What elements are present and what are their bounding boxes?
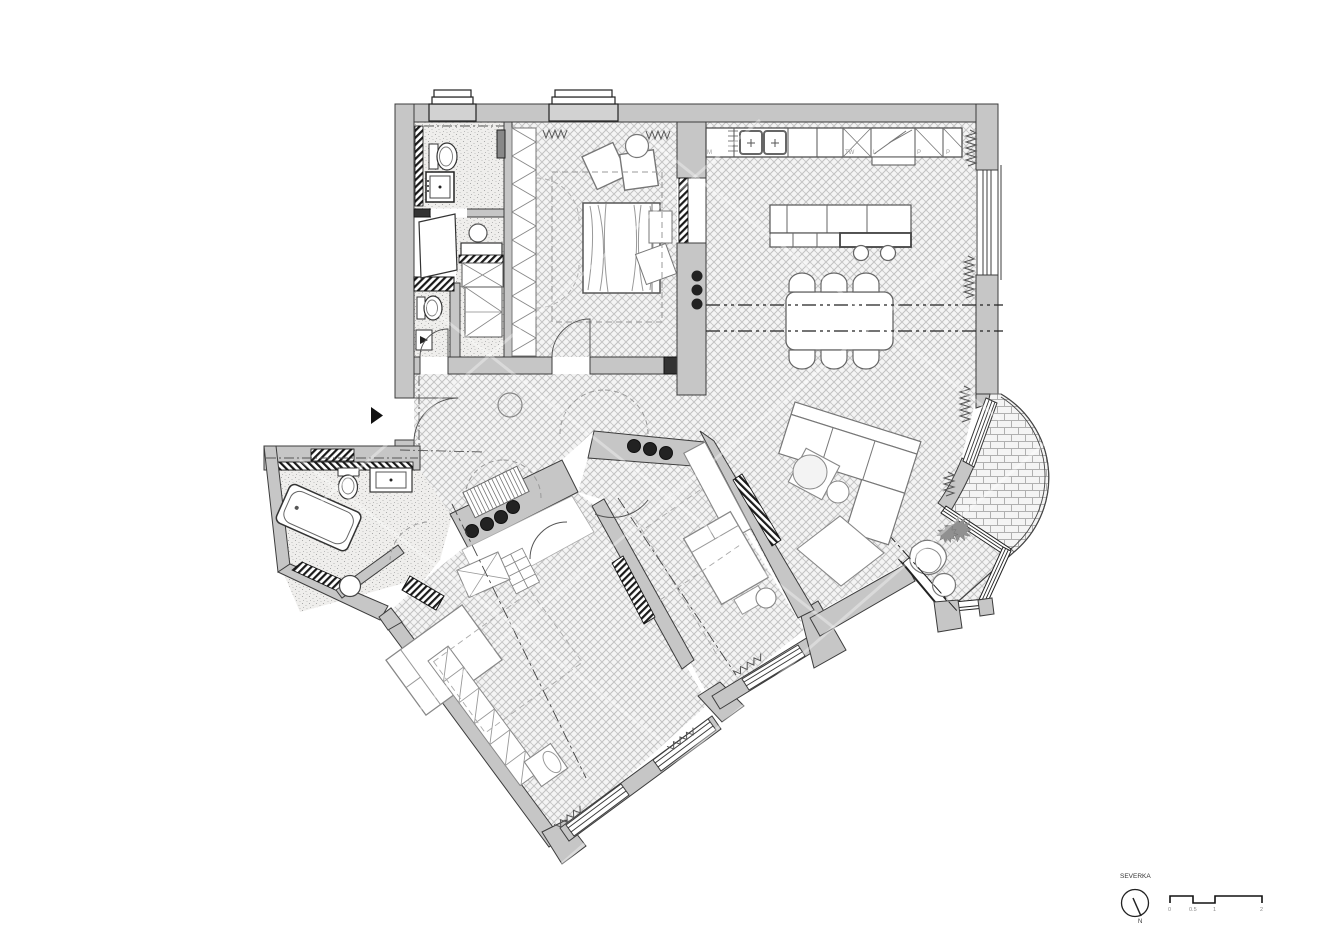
svg-text:2: 2 <box>1260 907 1263 913</box>
svg-text:P: P <box>917 150 921 156</box>
svg-text:P: P <box>946 150 950 156</box>
svg-text:SEVERKA: SEVERKA <box>1120 873 1151 880</box>
svg-text:M: M <box>707 150 712 156</box>
svg-text:TW: TW <box>845 150 855 156</box>
svg-text:N: N <box>1138 919 1142 925</box>
svg-text:0.5: 0.5 <box>1189 907 1197 913</box>
svg-text:0: 0 <box>1168 907 1171 913</box>
svg-text:1: 1 <box>1213 907 1216 913</box>
